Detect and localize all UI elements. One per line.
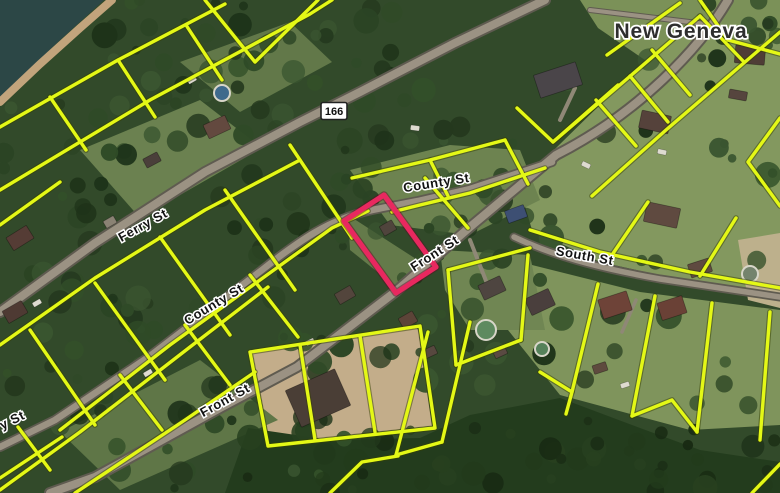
route-shield-number: 166 <box>325 106 343 118</box>
tree-blob <box>624 446 634 456</box>
tree-blob <box>169 461 193 485</box>
tree-blob <box>762 18 773 29</box>
tree-blob <box>243 472 253 482</box>
car-body <box>410 125 420 131</box>
tree-blob <box>590 437 604 451</box>
tree-blob <box>469 422 481 434</box>
tree-blob <box>450 117 471 138</box>
tree-blob <box>474 374 496 396</box>
tree-blob <box>170 484 178 492</box>
tree-blob <box>683 440 693 450</box>
pool <box>535 342 549 356</box>
tree-blob <box>3 369 12 378</box>
tree-blob <box>768 434 780 446</box>
tree-blob <box>655 426 668 439</box>
tree-blob <box>108 438 125 455</box>
tree-blob <box>227 220 242 235</box>
tree-blob <box>482 472 503 493</box>
tree-blob <box>73 374 83 384</box>
tree-blob <box>259 218 273 232</box>
tree-blob <box>382 44 399 61</box>
tree-blob <box>94 177 108 191</box>
tree-blob <box>369 346 391 368</box>
tree-blob <box>586 451 601 466</box>
tree-blob <box>739 396 757 414</box>
tree-blob <box>65 341 84 360</box>
tree-blob <box>5 101 18 114</box>
tree-blob <box>556 454 566 464</box>
tree-blob <box>353 8 379 34</box>
tree-blob <box>462 462 486 486</box>
tree-blob <box>691 453 704 466</box>
tree-blob <box>155 53 173 71</box>
tree-blob <box>374 131 394 151</box>
tree-blob <box>437 310 446 319</box>
tree-blob <box>589 219 605 235</box>
tree-blob <box>283 192 302 211</box>
tree-blob <box>424 223 435 234</box>
tree-blob <box>414 475 429 490</box>
tree-blob <box>196 23 215 42</box>
pool <box>476 320 496 340</box>
tree-blob <box>239 2 248 11</box>
tree-blob <box>584 417 593 426</box>
tree-blob <box>708 49 726 67</box>
tree-blob <box>5 376 26 397</box>
tree-blob <box>357 468 368 479</box>
tree-blob <box>351 58 361 68</box>
tree-blob <box>310 30 321 41</box>
tree-blob <box>307 75 323 91</box>
tree-blob <box>288 465 300 477</box>
satellite-map[interactable]: Ferry StCounty StCounty StFront StSouth … <box>0 0 780 493</box>
tree-blob <box>461 298 484 321</box>
tree-blob <box>381 2 402 23</box>
map-viewport[interactable]: Ferry StCounty StCounty StFront StSouth … <box>0 0 780 493</box>
tree-blob <box>411 78 435 102</box>
tree-blob <box>141 71 161 91</box>
tree-blob <box>313 442 335 464</box>
tree-blob <box>341 146 350 155</box>
tree-blob <box>720 356 731 367</box>
car <box>410 125 420 131</box>
tree-blob <box>728 154 737 163</box>
tree-blob <box>237 425 262 450</box>
tree-blob <box>121 304 134 317</box>
tree-blob <box>716 375 733 392</box>
tree-blob <box>280 333 288 341</box>
tree-blob <box>649 470 668 489</box>
tree-blob <box>337 128 363 154</box>
tree-blob <box>697 53 706 62</box>
tree-blob <box>227 416 237 426</box>
tree-blob <box>397 93 411 107</box>
tree-blob <box>709 138 729 158</box>
tree-blob <box>282 60 305 83</box>
tree-blob <box>104 193 117 206</box>
tree-blob <box>58 192 67 201</box>
tree-blob <box>549 306 574 331</box>
tree-blob <box>433 455 450 472</box>
tree-blob <box>607 343 623 359</box>
tree-blob <box>75 198 92 215</box>
tree-blob <box>115 144 137 166</box>
tree-blob <box>251 100 270 119</box>
tree-blob <box>506 429 516 439</box>
place-label: New Geneva <box>615 20 748 43</box>
pool <box>214 85 230 101</box>
tree-blob <box>539 185 552 198</box>
tree-blob <box>402 133 418 149</box>
tree-blob <box>167 130 188 151</box>
tree-blob <box>231 81 244 94</box>
tree-blob <box>546 474 556 484</box>
tree-blob <box>525 453 542 470</box>
tree-blob <box>533 273 547 287</box>
tree-blob <box>92 22 118 48</box>
tree-blob <box>144 126 161 143</box>
tree-blob <box>140 18 158 36</box>
tree-blob <box>634 458 646 470</box>
tree-blob <box>101 144 118 161</box>
route-shield-166: 166 <box>321 103 347 120</box>
tree-blob <box>70 178 86 194</box>
tree-blob <box>199 89 213 103</box>
